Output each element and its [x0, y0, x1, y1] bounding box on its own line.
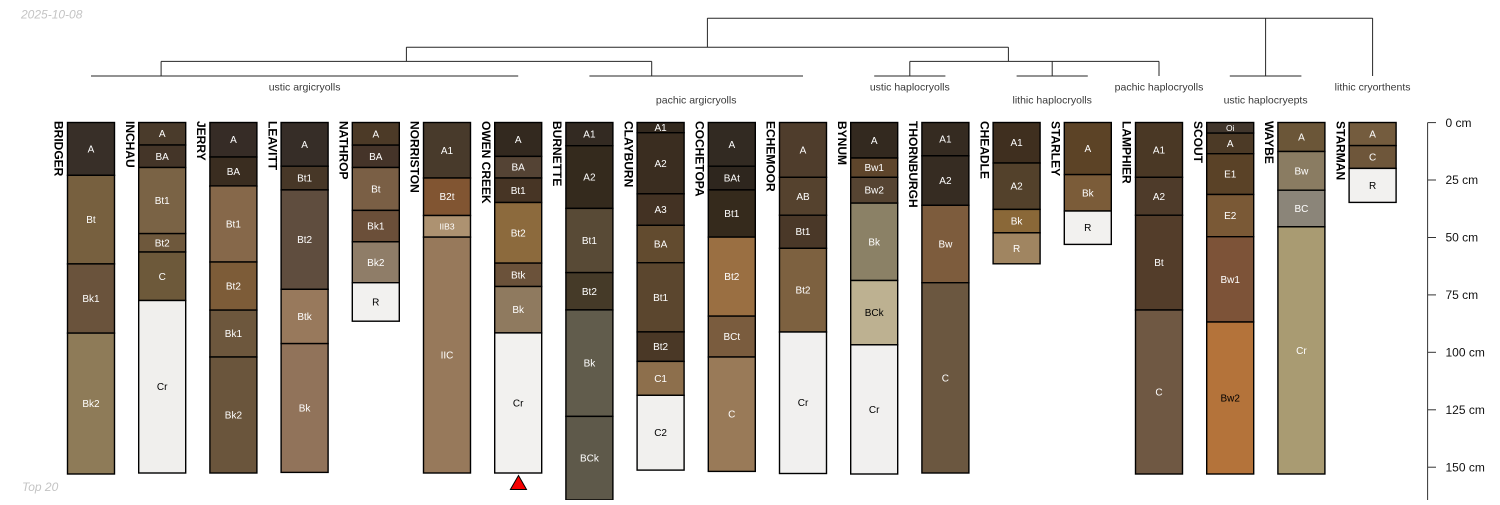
svg-text:Cr: Cr	[157, 382, 168, 393]
svg-text:A: A	[230, 135, 237, 146]
svg-text:C: C	[942, 373, 949, 384]
svg-text:A: A	[301, 140, 308, 151]
svg-text:WAYBE: WAYBE	[1262, 121, 1276, 164]
svg-text:A1: A1	[441, 146, 454, 157]
svg-text:pachic haplocryolls: pachic haplocryolls	[1115, 82, 1204, 94]
svg-text:Bt1: Bt1	[155, 196, 170, 207]
svg-text:Bk1: Bk1	[225, 329, 243, 340]
svg-text:Bt2: Bt2	[653, 342, 668, 353]
svg-text:OWEN CREEK: OWEN CREEK	[479, 121, 493, 204]
svg-text:Bt: Bt	[1154, 258, 1164, 269]
svg-text:Bw: Bw	[1294, 166, 1309, 177]
svg-text:BA: BA	[227, 167, 241, 178]
svg-text:Top 20: Top 20	[22, 480, 59, 494]
svg-text:Bw2: Bw2	[864, 186, 884, 197]
svg-text:ustic argicryolls: ustic argicryolls	[269, 82, 341, 94]
svg-text:C: C	[1369, 153, 1376, 164]
svg-text:lithic cryorthents: lithic cryorthents	[1335, 82, 1411, 94]
svg-text:A: A	[372, 129, 379, 140]
svg-text:BYNUM: BYNUM	[835, 121, 849, 165]
svg-text:Bt2: Bt2	[795, 286, 810, 297]
svg-text:BA: BA	[369, 152, 383, 163]
svg-text:A: A	[728, 140, 735, 151]
svg-text:2025-10-08: 2025-10-08	[20, 8, 83, 22]
svg-text:BCk: BCk	[580, 454, 600, 465]
svg-text:R: R	[372, 297, 379, 308]
svg-text:Bt2: Bt2	[724, 272, 739, 283]
svg-text:BCt: BCt	[723, 332, 740, 343]
svg-text:A: A	[159, 129, 166, 140]
svg-text:LAMPHIER: LAMPHIER	[1120, 121, 1134, 184]
svg-text:Cr: Cr	[798, 398, 809, 409]
svg-text:A1: A1	[939, 135, 952, 146]
svg-text:Btk: Btk	[511, 270, 526, 281]
svg-text:A1: A1	[583, 130, 596, 141]
svg-text:R: R	[1084, 223, 1091, 234]
svg-text:A: A	[800, 145, 807, 156]
svg-text:A2: A2	[1010, 182, 1023, 193]
svg-text:pachic argicryolls: pachic argicryolls	[656, 95, 737, 107]
svg-text:Bt1: Bt1	[582, 236, 597, 247]
svg-text:JERRY: JERRY	[194, 121, 208, 161]
svg-text:150 cm: 150 cm	[1446, 460, 1485, 474]
svg-text:LEAVITT: LEAVITT	[265, 121, 279, 171]
svg-text:Bt1: Bt1	[653, 293, 668, 304]
svg-text:A1: A1	[1010, 138, 1023, 149]
svg-text:ustic haplocryepts: ustic haplocryepts	[1224, 95, 1308, 107]
svg-text:B2t: B2t	[439, 192, 454, 203]
svg-text:75 cm: 75 cm	[1446, 288, 1479, 302]
svg-text:THORNBURGH: THORNBURGH	[906, 121, 920, 208]
svg-text:CHEADLE: CHEADLE	[977, 121, 991, 179]
svg-text:Bt1: Bt1	[724, 209, 739, 220]
svg-text:BCk: BCk	[865, 308, 885, 319]
svg-text:ECHEMOOR: ECHEMOOR	[764, 121, 778, 192]
svg-text:Bt2: Bt2	[511, 228, 526, 239]
svg-text:STARMAN: STARMAN	[1333, 121, 1347, 180]
svg-text:A: A	[871, 136, 878, 147]
svg-text:Bk1: Bk1	[82, 294, 100, 305]
svg-text:Bk2: Bk2	[225, 411, 243, 422]
svg-text:A: A	[1298, 133, 1305, 144]
svg-text:Bt2: Bt2	[582, 287, 597, 298]
svg-text:Bk: Bk	[299, 404, 312, 415]
svg-text:A: A	[515, 135, 522, 146]
svg-text:AB: AB	[796, 192, 810, 203]
svg-text:BC: BC	[1294, 204, 1308, 215]
svg-text:BA: BA	[156, 152, 170, 163]
svg-text:A2: A2	[939, 176, 952, 187]
svg-text:IIC: IIC	[441, 351, 454, 362]
svg-text:Bk: Bk	[1082, 188, 1095, 199]
svg-text:A2: A2	[654, 159, 667, 170]
svg-text:Bt1: Bt1	[226, 219, 241, 230]
svg-text:A2: A2	[583, 173, 596, 184]
svg-text:100 cm: 100 cm	[1446, 346, 1485, 360]
svg-text:Bt2: Bt2	[226, 282, 241, 293]
svg-text:C2: C2	[654, 428, 667, 439]
svg-text:A: A	[88, 144, 95, 155]
svg-text:Bt2: Bt2	[297, 235, 312, 246]
svg-text:lithic haplocryolls: lithic haplocryolls	[1013, 95, 1092, 107]
svg-text:A: A	[1084, 144, 1091, 155]
svg-text:Bt2: Bt2	[155, 238, 170, 249]
svg-text:Bw: Bw	[938, 240, 953, 251]
svg-text:Bk2: Bk2	[367, 258, 385, 269]
svg-text:Bt1: Bt1	[297, 174, 312, 185]
svg-text:E2: E2	[1224, 211, 1237, 222]
svg-text:C: C	[1155, 388, 1162, 399]
svg-text:ustic haplocryolls: ustic haplocryolls	[870, 82, 950, 94]
svg-text:Bw2: Bw2	[1220, 394, 1240, 405]
svg-text:Bk: Bk	[512, 305, 525, 316]
svg-text:Oi: Oi	[1226, 123, 1235, 133]
svg-text:Bk: Bk	[868, 237, 881, 248]
svg-text:INCHAU: INCHAU	[123, 121, 137, 168]
svg-text:A: A	[1369, 130, 1376, 141]
svg-text:R: R	[1369, 181, 1376, 192]
svg-text:Bt: Bt	[371, 184, 381, 195]
svg-text:BA: BA	[654, 240, 668, 251]
svg-text:BA: BA	[512, 163, 526, 174]
svg-text:COCHETOPA: COCHETOPA	[693, 121, 707, 197]
svg-text:Bt1: Bt1	[795, 227, 810, 238]
svg-text:A: A	[1227, 139, 1234, 150]
svg-text:Bk1: Bk1	[367, 222, 385, 233]
svg-text:BRIDGER: BRIDGER	[52, 121, 66, 177]
svg-text:A1: A1	[654, 123, 667, 134]
svg-text:25 cm: 25 cm	[1446, 173, 1479, 187]
svg-text:E1: E1	[1224, 170, 1237, 181]
svg-text:A1: A1	[1153, 145, 1166, 156]
svg-text:C: C	[159, 272, 166, 283]
svg-text:Bw1: Bw1	[864, 163, 884, 174]
svg-text:Cr: Cr	[1296, 346, 1307, 357]
svg-text:Bw1: Bw1	[1220, 275, 1240, 286]
svg-text:NORRISTON: NORRISTON	[408, 121, 422, 193]
svg-text:125 cm: 125 cm	[1446, 403, 1485, 417]
svg-text:BAt: BAt	[724, 174, 740, 185]
svg-text:STARLEY: STARLEY	[1049, 121, 1063, 176]
svg-text:Cr: Cr	[869, 405, 880, 416]
svg-text:Bt: Bt	[86, 215, 96, 226]
svg-text:C: C	[728, 410, 735, 421]
svg-text:Bk: Bk	[584, 359, 597, 370]
svg-text:A2: A2	[1153, 192, 1166, 203]
svg-text:Bk: Bk	[1011, 217, 1024, 228]
svg-text:C1: C1	[654, 374, 667, 385]
svg-text:R: R	[1013, 244, 1020, 255]
svg-text:Bk2: Bk2	[82, 399, 100, 410]
svg-text:NATHROP: NATHROP	[337, 121, 351, 179]
svg-text:Btk: Btk	[297, 312, 312, 323]
svg-text:Bt1: Bt1	[511, 186, 526, 197]
svg-text:BURNETTE: BURNETTE	[550, 121, 564, 186]
svg-text:IIB3: IIB3	[439, 221, 454, 231]
svg-text:A3: A3	[654, 205, 667, 216]
svg-text:SCOUT: SCOUT	[1191, 121, 1205, 164]
svg-text:CLAYBURN: CLAYBURN	[621, 121, 635, 187]
svg-text:Cr: Cr	[513, 398, 524, 409]
svg-text:0 cm: 0 cm	[1446, 116, 1472, 130]
svg-text:50 cm: 50 cm	[1446, 231, 1479, 245]
